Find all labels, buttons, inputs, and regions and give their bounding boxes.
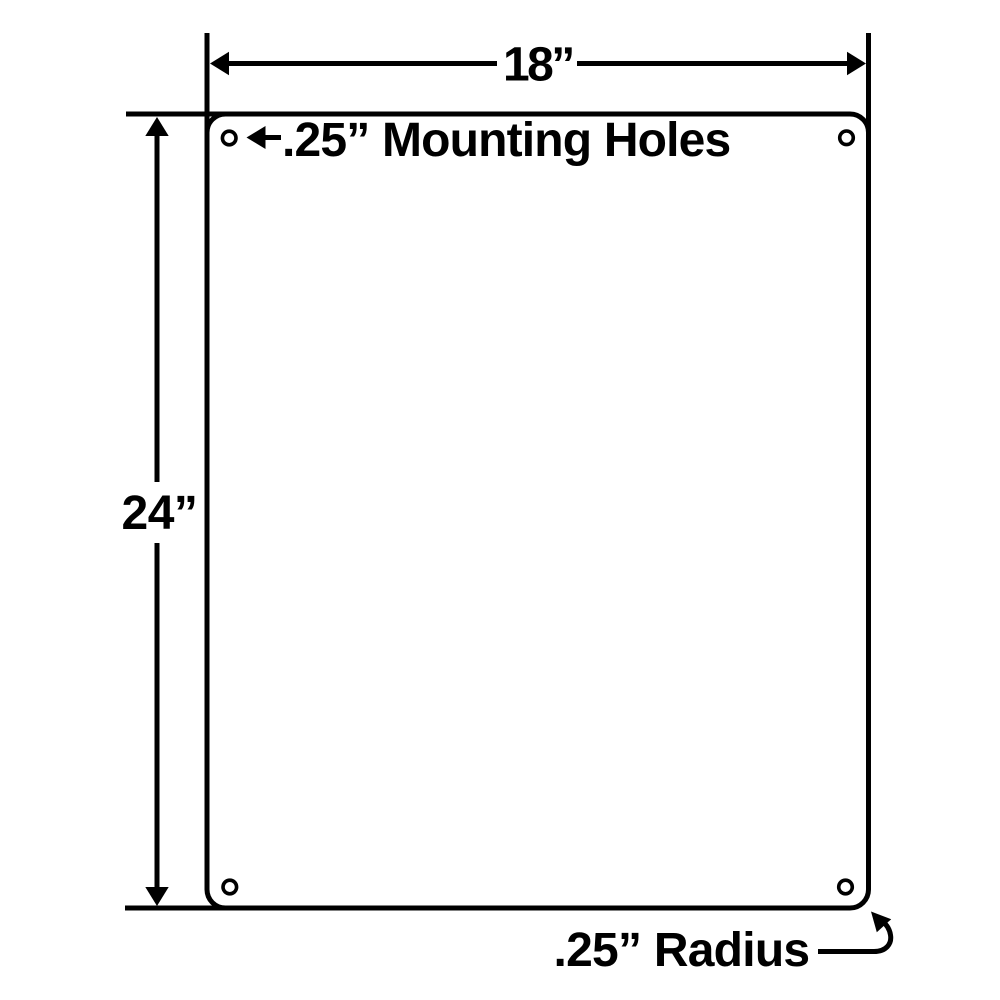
svg-text:24”: 24” <box>122 487 198 540</box>
svg-text:.25” Mounting Holes: .25” Mounting Holes <box>282 114 730 167</box>
svg-text:.25” Radius: .25” Radius <box>554 924 810 977</box>
svg-text:18”: 18” <box>503 39 573 92</box>
